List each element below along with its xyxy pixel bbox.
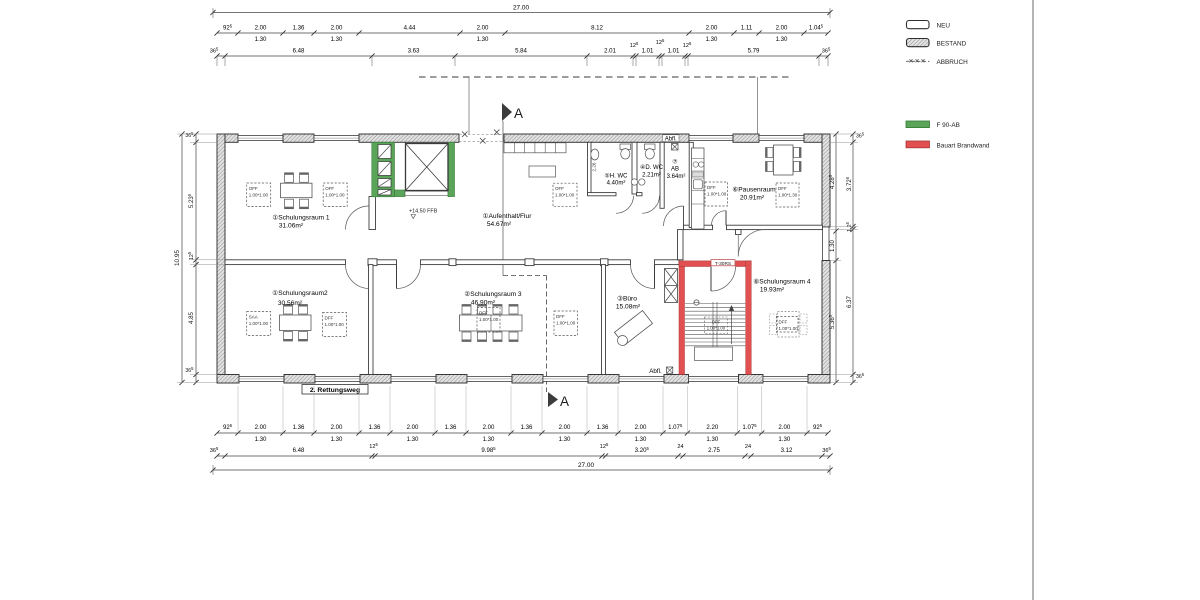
svg-text:①Schulungsraum 1: ①Schulungsraum 1 [272, 214, 330, 222]
svg-text:F 90-AB: F 90-AB [937, 122, 960, 129]
svg-text:1.36: 1.36 [293, 25, 305, 32]
svg-text:24: 24 [745, 444, 751, 450]
svg-text:2.00: 2.00 [706, 25, 718, 32]
svg-text:1.11: 1.11 [741, 25, 753, 32]
svg-text:30.56m²: 30.56m² [278, 300, 303, 307]
svg-text:2.00: 2.00 [255, 424, 267, 431]
svg-text:2.26: 2.26 [592, 162, 597, 171]
svg-text:Abfl.: Abfl. [649, 368, 662, 375]
svg-text:1.30: 1.30 [331, 36, 343, 43]
svg-text:2.00: 2.00 [635, 424, 647, 431]
svg-text:ABBRUCH: ABBRUCH [937, 59, 969, 66]
svg-text:5.79: 5.79 [748, 48, 760, 55]
svg-text:1.00*1.00: 1.00*1.00 [779, 326, 799, 331]
svg-text:2.00: 2.00 [778, 424, 790, 431]
svg-text:2.00: 2.00 [776, 25, 788, 32]
svg-text:OFF: OFF [249, 186, 258, 191]
svg-text:②Schulungsraum 3: ②Schulungsraum 3 [464, 290, 522, 298]
svg-text:1.36: 1.36 [597, 424, 609, 431]
svg-text:2.00: 2.00 [483, 424, 495, 431]
svg-text:①Aufenthalt/Flur: ①Aufenthalt/Flur [483, 212, 533, 220]
svg-text:4.40m²: 4.40m² [607, 181, 626, 187]
svg-text:A: A [514, 106, 523, 121]
svg-text:BESTAND: BESTAND [937, 41, 967, 48]
svg-text:2.21m²: 2.21m² [642, 173, 661, 179]
svg-text:2.00: 2.00 [331, 25, 343, 32]
svg-text:20.91m²: 20.91m² [740, 195, 765, 202]
svg-text:Bauart Brandwand: Bauart Brandwand [937, 143, 990, 150]
svg-text:+14.50 FFB: +14.50 FFB [409, 209, 438, 215]
svg-text:1.36: 1.36 [369, 424, 381, 431]
svg-text:8.12: 8.12 [591, 25, 603, 32]
svg-text:4.44: 4.44 [404, 25, 416, 32]
svg-text:1.30: 1.30 [706, 36, 718, 43]
svg-text:3.64m²: 3.64m² [667, 174, 686, 180]
svg-text:DFF: DFF [779, 320, 788, 325]
svg-text:DFF: DFF [707, 185, 716, 190]
svg-text:2.20: 2.20 [706, 424, 718, 431]
svg-text:AB: AB [671, 167, 679, 173]
svg-text:1.00*1.00: 1.00*1.00 [325, 322, 345, 327]
svg-text:DFF: DFF [712, 320, 721, 325]
svg-text:1.30: 1.30 [483, 436, 495, 443]
svg-text:27.00: 27.00 [578, 462, 594, 469]
svg-text:46.90m²: 46.90m² [471, 300, 496, 307]
svg-text:54.67m²: 54.67m² [487, 221, 512, 228]
svg-text:DFF: DFF [325, 316, 334, 321]
svg-text:2.01: 2.01 [604, 48, 616, 55]
svg-text:2.75: 2.75 [708, 447, 720, 454]
svg-text:1.30: 1.30 [776, 36, 788, 43]
svg-text:1.01: 1.01 [642, 48, 654, 55]
svg-text:3.12: 3.12 [781, 447, 793, 454]
svg-text:1.00*1.30: 1.00*1.30 [778, 193, 798, 198]
svg-text:③Büro: ③Büro [617, 295, 637, 303]
svg-text:1.36: 1.36 [445, 424, 457, 431]
svg-text:4.85: 4.85 [188, 311, 195, 323]
svg-text:SAA: SAA [249, 315, 258, 320]
svg-text:2.00: 2.00 [331, 424, 343, 431]
svg-text:2.00: 2.00 [477, 25, 489, 32]
svg-text:NEU: NEU [937, 23, 951, 30]
svg-text:19.93m²: 19.93m² [760, 287, 785, 294]
svg-text:1.30: 1.30 [477, 36, 489, 43]
svg-text:1.30: 1.30 [331, 436, 343, 443]
svg-text:1.00*1.00: 1.00*1.00 [479, 317, 499, 322]
svg-text:①Schulungsraum2: ①Schulungsraum2 [272, 289, 328, 297]
svg-text:2. Rettungsweg: 2. Rettungsweg [310, 387, 360, 394]
svg-text:2.00: 2.00 [407, 424, 419, 431]
svg-text:2.00: 2.00 [559, 424, 571, 431]
svg-text:DFF: DFF [778, 186, 787, 191]
svg-text:10.95: 10.95 [174, 250, 181, 266]
svg-text:1.30: 1.30 [635, 436, 647, 443]
svg-text:6.48: 6.48 [293, 48, 305, 55]
svg-text:④D. WC: ④D. WC [640, 164, 664, 171]
svg-text:1.36: 1.36 [521, 424, 533, 431]
svg-text:1.30: 1.30 [407, 436, 419, 443]
svg-text:1.30: 1.30 [255, 36, 267, 43]
svg-text:1.30: 1.30 [706, 436, 718, 443]
svg-text:24: 24 [677, 444, 683, 450]
svg-text:⑧Schulungsraum 4: ⑧Schulungsraum 4 [753, 278, 811, 286]
svg-text:1.00*1.00: 1.00*1.00 [707, 192, 727, 197]
svg-text:1.00*1.00: 1.00*1.00 [249, 193, 269, 198]
svg-text:15.08m²: 15.08m² [616, 304, 641, 311]
svg-text:1.00*1.00: 1.00*1.00 [556, 321, 576, 326]
svg-text:1.00*1.00: 1.00*1.00 [707, 326, 726, 331]
svg-text:1.30: 1.30 [255, 436, 267, 443]
svg-text:31.06m²: 31.06m² [279, 223, 304, 230]
svg-text:6.48: 6.48 [293, 447, 305, 454]
svg-text:A: A [560, 394, 569, 409]
svg-text:OFF: OFF [555, 186, 564, 191]
svg-text:3.63: 3.63 [408, 48, 420, 55]
svg-text:27.00: 27.00 [513, 5, 529, 12]
svg-text:⑥Pausenraum: ⑥Pausenraum [732, 186, 776, 194]
svg-text:⑦: ⑦ [672, 159, 677, 166]
svg-text:1.00*1.00: 1.00*1.00 [555, 193, 575, 198]
svg-text:Abfl.: Abfl. [665, 136, 677, 142]
svg-text:1.30: 1.30 [778, 436, 790, 443]
svg-text:1.00*1.00: 1.00*1.00 [249, 321, 269, 326]
svg-text:1.01: 1.01 [668, 48, 680, 55]
svg-text:2.00: 2.00 [255, 25, 267, 32]
svg-text:⑤H. WC: ⑤H. WC [604, 173, 628, 180]
svg-text:6.37: 6.37 [846, 295, 853, 307]
svg-text:1.30: 1.30 [829, 239, 836, 251]
svg-text:1.00*1.00: 1.00*1.00 [325, 193, 345, 198]
svg-text:OFF: OFF [325, 186, 334, 191]
svg-text:T-30RS: T-30RS [715, 261, 731, 267]
svg-text:DFF: DFF [556, 314, 565, 319]
svg-text:5.84: 5.84 [515, 48, 527, 55]
svg-text:1.36: 1.36 [293, 424, 305, 431]
svg-text:DFF: DFF [479, 311, 488, 316]
svg-text:1.30: 1.30 [559, 436, 571, 443]
